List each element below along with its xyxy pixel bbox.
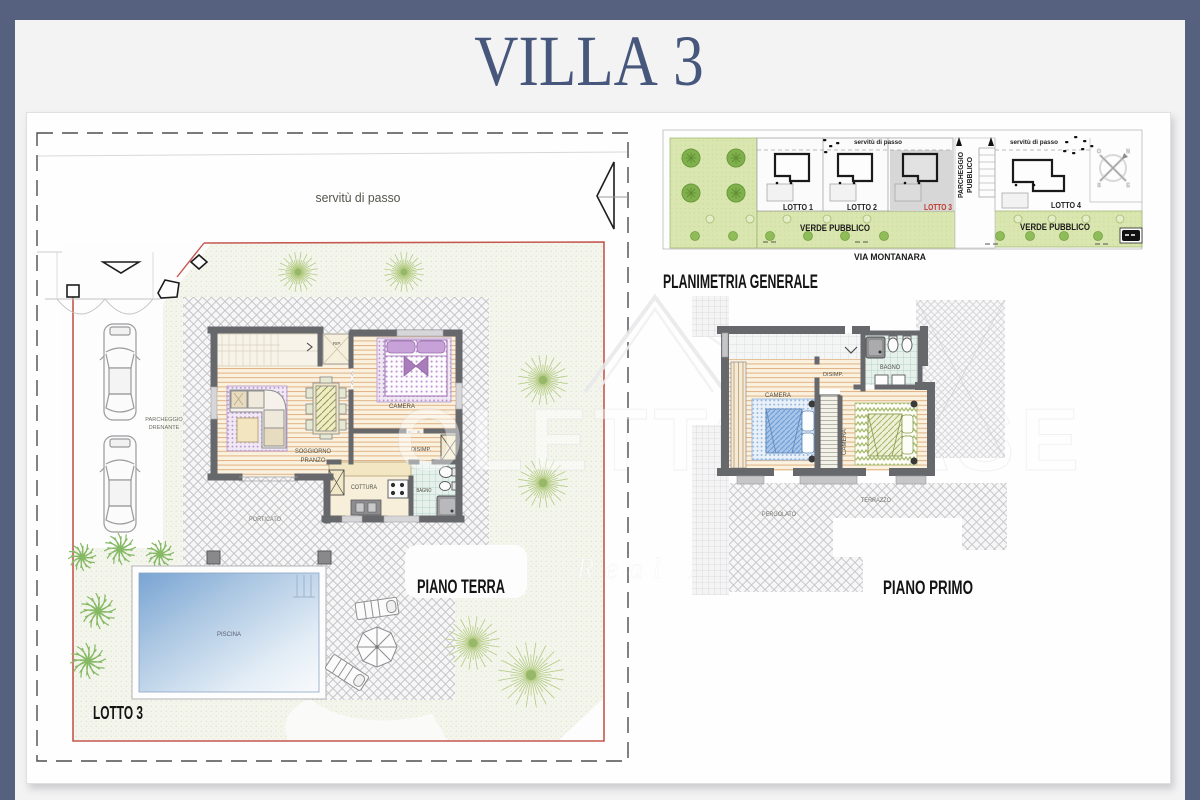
svg-text:VERDE PUBBLICO: VERDE PUBBLICO xyxy=(800,223,870,234)
svg-text:LOTTO 2: LOTTO 2 xyxy=(847,202,877,212)
svg-text:LOTTO 3: LOTTO 3 xyxy=(924,202,952,212)
svg-text:PUBBLICO: PUBBLICO xyxy=(967,156,974,193)
svg-text:servitù di passo: servitù di passo xyxy=(1010,139,1058,146)
svg-text:N: N xyxy=(1126,149,1130,155)
svg-text:COTTURA: COTTURA xyxy=(351,485,377,491)
svg-text:CAMERA: CAMERA xyxy=(765,392,792,399)
svg-text:CAMERA: CAMERA xyxy=(841,428,848,455)
svg-text:PIANO TERRA: PIANO TERRA xyxy=(417,577,505,598)
svg-text:PARCHEGGIO: PARCHEGGIO xyxy=(958,151,965,198)
svg-text:servitù di passo: servitù di passo xyxy=(316,191,401,205)
svg-text:PLANIMETRIA GENERALE: PLANIMETRIA GENERALE xyxy=(663,271,818,293)
svg-text:LOTTO 3: LOTTO 3 xyxy=(93,703,143,723)
svg-text:LOTTO 1: LOTTO 1 xyxy=(783,202,813,212)
svg-text:DRENANTE: DRENANTE xyxy=(149,425,180,431)
svg-text:TERRAZZO: TERRAZZO xyxy=(861,497,891,504)
svg-text:servitù di passo: servitù di passo xyxy=(854,139,902,146)
svg-text:PARCHEGGIO: PARCHEGGIO xyxy=(145,417,183,423)
svg-text:PIANO PRIMO: PIANO PRIMO xyxy=(883,578,973,599)
svg-text:BAGNO: BAGNO xyxy=(880,365,900,371)
svg-text:PORTICATO: PORTICATO xyxy=(249,517,281,523)
svg-text:LOTTO 4: LOTTO 4 xyxy=(1051,200,1081,210)
svg-text:PERGOLATO: PERGOLATO xyxy=(762,511,796,518)
svg-text:DISIMP.: DISIMP. xyxy=(823,372,843,378)
svg-text:RIP.: RIP. xyxy=(333,341,341,346)
svg-text:O: O xyxy=(1097,149,1101,155)
svg-text:VIA MONTANARA: VIA MONTANARA xyxy=(854,252,926,263)
svg-text:PRANZO: PRANZO xyxy=(301,457,326,464)
svg-text:PISCINA: PISCINA xyxy=(217,632,241,638)
svg-text:VERDE PUBBLICO: VERDE PUBBLICO xyxy=(1020,222,1090,233)
svg-text:SOGGIORNO: SOGGIORNO xyxy=(295,448,331,455)
